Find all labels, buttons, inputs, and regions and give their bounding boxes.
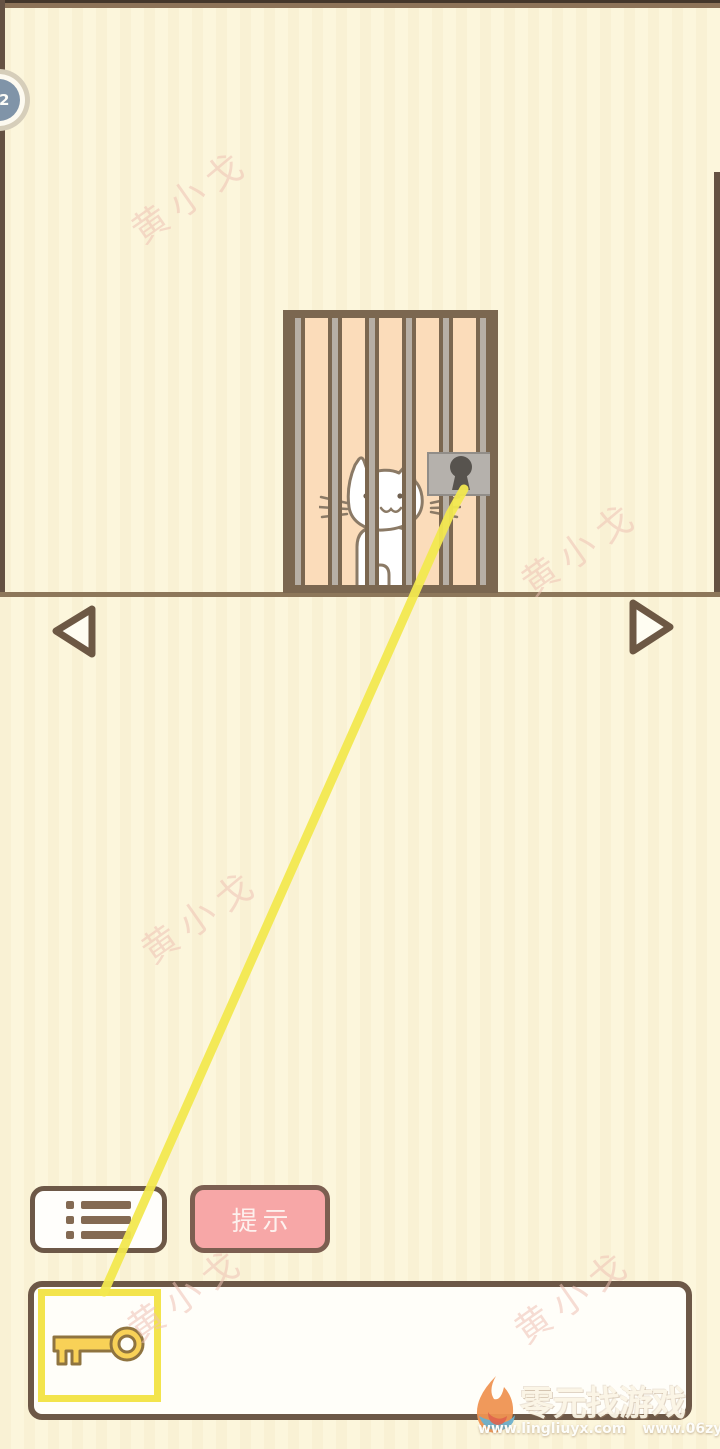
left-triangle-icon <box>56 609 92 654</box>
cage <box>283 310 498 593</box>
cage-bar <box>365 318 379 585</box>
site-url-right: www.06zyx.com <box>642 1421 720 1437</box>
watermark-text: 黄小戈 <box>509 486 649 606</box>
right-triangle-icon <box>633 603 670 651</box>
level-number: 22 <box>0 91 10 109</box>
cage-bar <box>328 318 342 585</box>
prev-arrow-button[interactable] <box>44 602 106 664</box>
site-url-left: www.lingliuyx.com <box>478 1421 626 1437</box>
keyhole-icon <box>429 454 495 494</box>
key-icon <box>52 1324 147 1368</box>
inventory-bar[interactable] <box>28 1281 692 1420</box>
hint-button-label: 提示 <box>226 1201 293 1238</box>
padlock[interactable] <box>427 452 497 496</box>
hint-button[interactable]: 提示 <box>190 1185 330 1253</box>
watermark-text: 黄小戈 <box>129 854 269 974</box>
next-arrow-button[interactable] <box>620 595 680 659</box>
right-wall-edge <box>714 172 720 594</box>
item-list-button[interactable] <box>30 1186 167 1253</box>
cage-bar <box>291 318 305 585</box>
cage-bar <box>402 318 416 585</box>
ceiling-bar <box>0 0 720 8</box>
watermark-text: 黄小戈 <box>119 134 259 254</box>
list-icon <box>66 1201 131 1239</box>
inventory-slot-key[interactable] <box>38 1289 161 1402</box>
level-badge[interactable]: 22 <box>0 69 30 131</box>
